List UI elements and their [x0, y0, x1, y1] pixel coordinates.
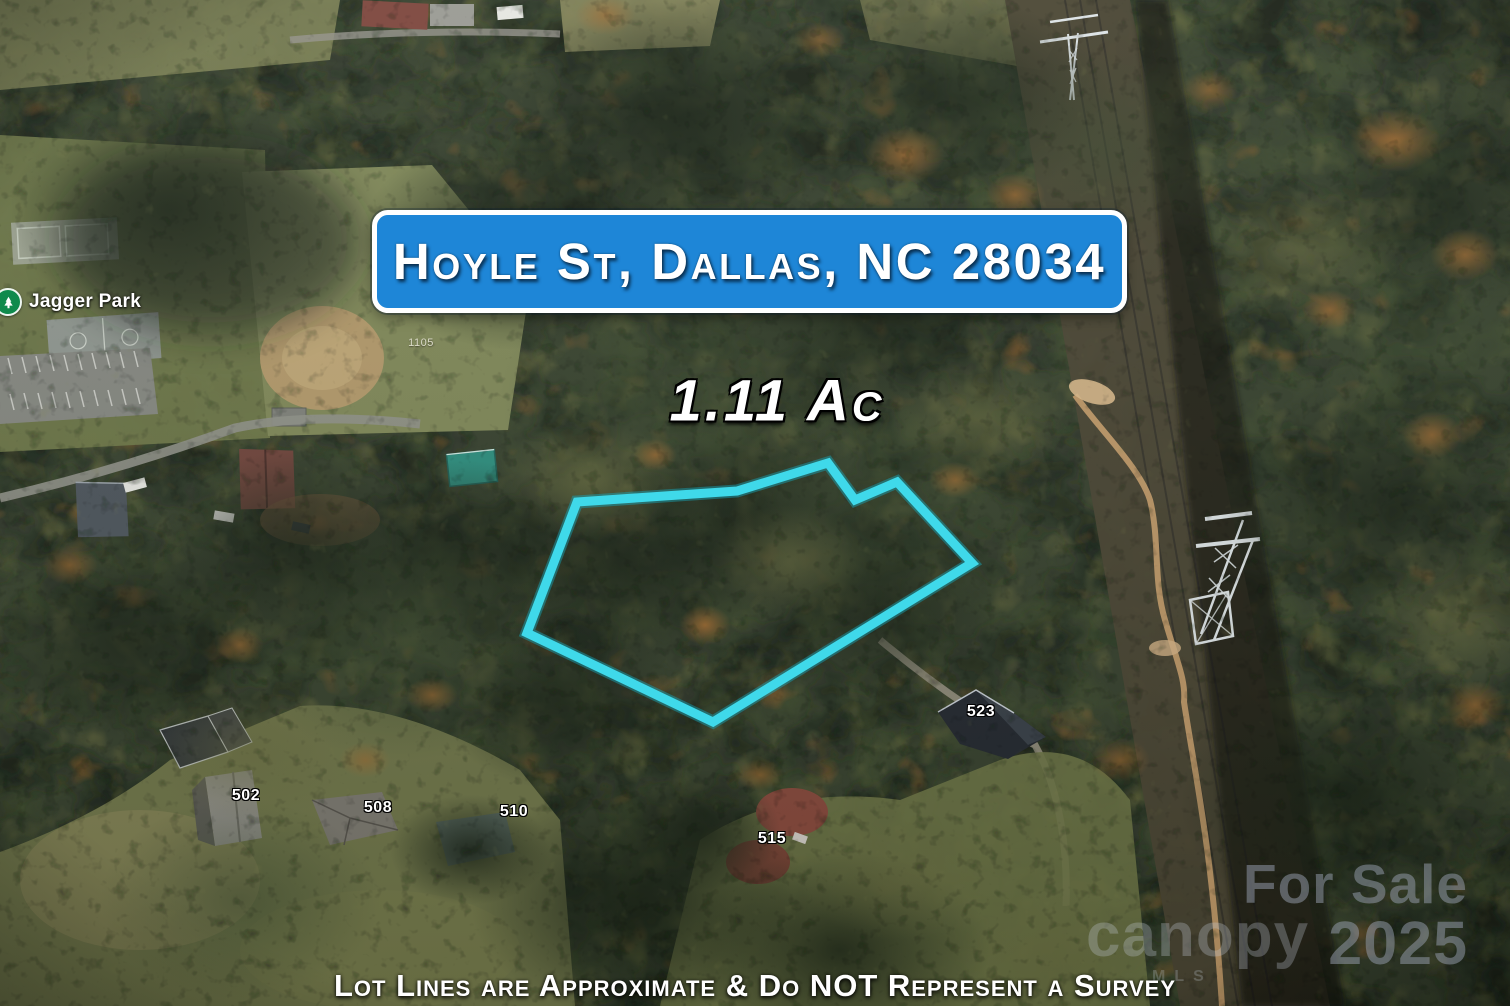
park-label: Jagger Park	[0, 288, 141, 316]
house-number-label: 502	[232, 787, 260, 805]
house-number-label: 515	[758, 830, 786, 848]
park-name: Jagger Park	[29, 291, 141, 313]
parcel-number-label: 1105	[408, 337, 434, 349]
address-banner-title: Hoyle St, Dallas, NC 28034	[393, 232, 1106, 291]
disclaimer-text: Lot Lines are Approximate & Do NOT Repre…	[0, 968, 1510, 1004]
brand-watermark: canopy	[1086, 900, 1309, 971]
house-number-label: 510	[500, 803, 528, 821]
tree-icon	[0, 288, 22, 316]
acreage-label: 1.11 Ac	[669, 368, 884, 435]
listing-aerial-image: Hoyle St, Dallas, NC 28034 1.11 Ac Jagge…	[0, 0, 1510, 1006]
house-number-label: 508	[364, 799, 392, 817]
house-number-label: 523	[967, 703, 995, 721]
address-banner: Hoyle St, Dallas, NC 28034	[372, 210, 1127, 313]
